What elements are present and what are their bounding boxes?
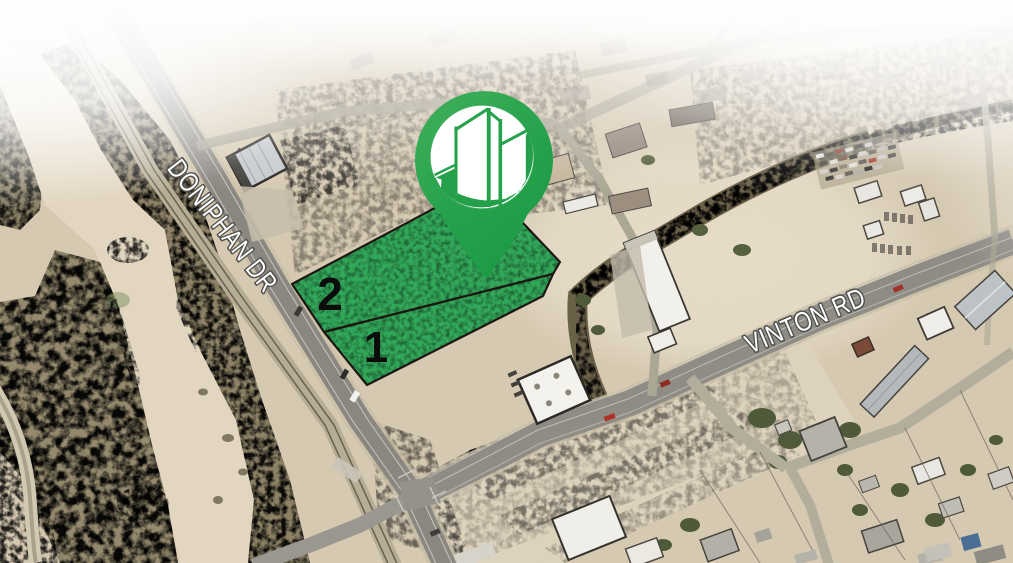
svg-text:1: 1 — [364, 323, 388, 372]
svg-text:2: 2 — [317, 268, 343, 320]
